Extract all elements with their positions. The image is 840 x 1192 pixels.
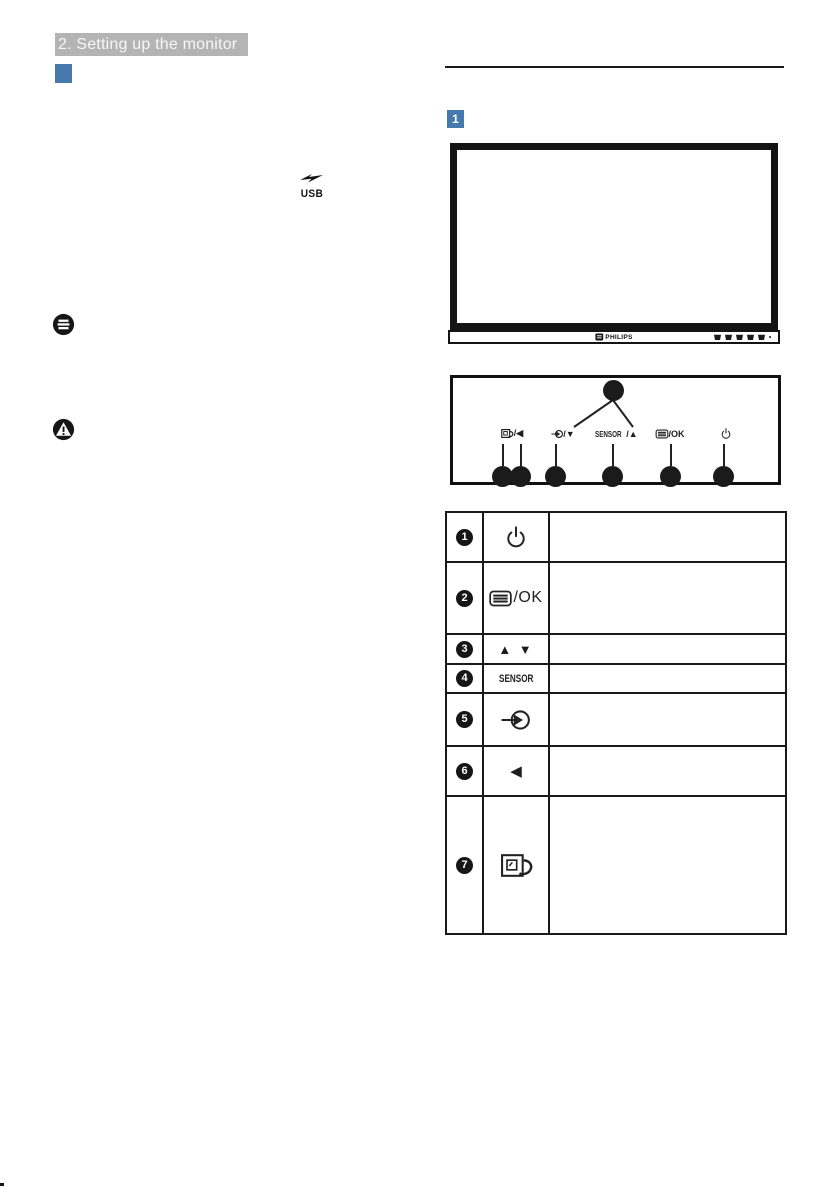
callout-tick bbox=[723, 444, 725, 466]
warning-icon bbox=[52, 418, 75, 446]
bezel-button-icon bbox=[736, 334, 743, 340]
input-source-icon bbox=[551, 429, 563, 439]
row-number-badge: 3 bbox=[456, 641, 473, 658]
section-marker-square bbox=[55, 64, 72, 83]
monitor-front-illustration bbox=[450, 143, 778, 330]
row-description bbox=[550, 563, 785, 633]
row-number-badge: 4 bbox=[456, 670, 473, 687]
callout-tick bbox=[555, 444, 557, 466]
power-led-dot bbox=[769, 336, 771, 338]
callout-tick bbox=[520, 444, 522, 466]
callout-dot bbox=[713, 466, 734, 487]
back-arrow-icon: ◀ bbox=[510, 762, 522, 780]
button-description-table: 1 2 /OK 3 bbox=[445, 511, 787, 935]
sensor-label: SENSOR bbox=[595, 429, 622, 439]
callout-dot bbox=[602, 466, 623, 487]
menu-ok-icon bbox=[655, 429, 668, 439]
smartimage-icon bbox=[501, 428, 514, 439]
table-row: 6 ◀ bbox=[447, 747, 785, 797]
figure-number-badge: 1 bbox=[447, 110, 464, 128]
manual-page: 2. Setting up the monitor USB 1 bbox=[0, 0, 840, 1192]
control-panel-diagram: /◀ /▼ SENSOR/▲ /OK bbox=[450, 375, 781, 485]
row-number-badge: 5 bbox=[456, 711, 473, 728]
row-description bbox=[550, 747, 785, 795]
row-number-badge: 6 bbox=[456, 763, 473, 780]
column-divider-rule bbox=[445, 66, 784, 68]
callout-dot bbox=[510, 466, 531, 487]
usb-fastcharge-icon: USB bbox=[296, 170, 328, 200]
row-description bbox=[550, 665, 785, 692]
chapter-header: 2. Setting up the monitor bbox=[55, 33, 248, 56]
label-smartimage-back: /◀ bbox=[501, 427, 523, 440]
label-sensor-up: SENSOR/▲ bbox=[590, 427, 637, 440]
callout-tick bbox=[612, 444, 614, 466]
sensor-label: SENSOR bbox=[499, 673, 533, 685]
bezel-control-buttons bbox=[714, 334, 771, 340]
row-description bbox=[550, 513, 785, 561]
label-input-down: /▼ bbox=[551, 427, 574, 440]
usb-label: USB bbox=[297, 188, 326, 200]
power-icon bbox=[505, 526, 527, 548]
input-source-icon bbox=[501, 708, 531, 732]
philips-wordmark: PHILIPS bbox=[605, 334, 632, 341]
ok-label: /OK bbox=[513, 589, 542, 607]
lightning-bolt-icon bbox=[299, 172, 325, 183]
label-suffix: /▼ bbox=[563, 429, 574, 439]
note-icon bbox=[52, 313, 75, 341]
up-down-arrows-icon: ▲ ▼ bbox=[498, 642, 533, 657]
label-suffix: /◀ bbox=[514, 428, 523, 439]
bezel-button-icon bbox=[747, 334, 754, 340]
label-menu-ok: /OK bbox=[655, 427, 684, 440]
bezel-button-icon bbox=[758, 334, 765, 340]
page-footer-mark bbox=[0, 1183, 4, 1186]
label-suffix: /OK bbox=[668, 429, 684, 439]
bezel-button-icon bbox=[714, 334, 721, 340]
callout-tick bbox=[502, 444, 504, 466]
callout-tick bbox=[670, 444, 672, 466]
row-description bbox=[550, 635, 785, 663]
label-power bbox=[721, 427, 732, 440]
philips-logo: PHILIPS bbox=[595, 333, 632, 341]
smartimage-icon bbox=[500, 851, 533, 880]
power-icon bbox=[721, 428, 732, 439]
table-row: 5 bbox=[447, 694, 785, 747]
callout-dot bbox=[545, 466, 566, 487]
table-row: 2 /OK bbox=[447, 563, 785, 635]
table-row: 4 SENSOR bbox=[447, 665, 785, 694]
philips-shield-icon bbox=[595, 333, 603, 341]
table-row: 1 bbox=[447, 513, 785, 563]
callout-dot bbox=[603, 380, 624, 401]
table-row: 7 bbox=[447, 797, 785, 933]
label-suffix: /▲ bbox=[626, 429, 637, 439]
menu-ok-icon bbox=[489, 590, 512, 607]
row-description bbox=[550, 797, 785, 933]
callout-dot bbox=[660, 466, 681, 487]
row-description bbox=[550, 694, 785, 745]
bezel-button-icon bbox=[725, 334, 732, 340]
row-number-badge: 1 bbox=[456, 529, 473, 546]
row-number-badge: 2 bbox=[456, 590, 473, 607]
table-row: 3 ▲ ▼ bbox=[447, 635, 785, 665]
row-number-badge: 7 bbox=[456, 857, 473, 874]
monitor-bottom-bezel: PHILIPS bbox=[448, 330, 780, 344]
